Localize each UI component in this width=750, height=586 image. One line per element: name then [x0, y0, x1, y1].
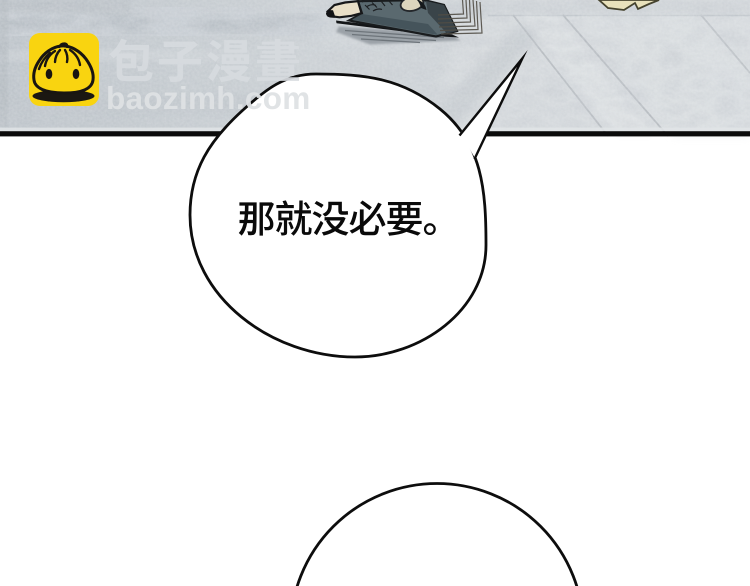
svg-text:baozimh.com: baozimh.com [106, 80, 311, 116]
